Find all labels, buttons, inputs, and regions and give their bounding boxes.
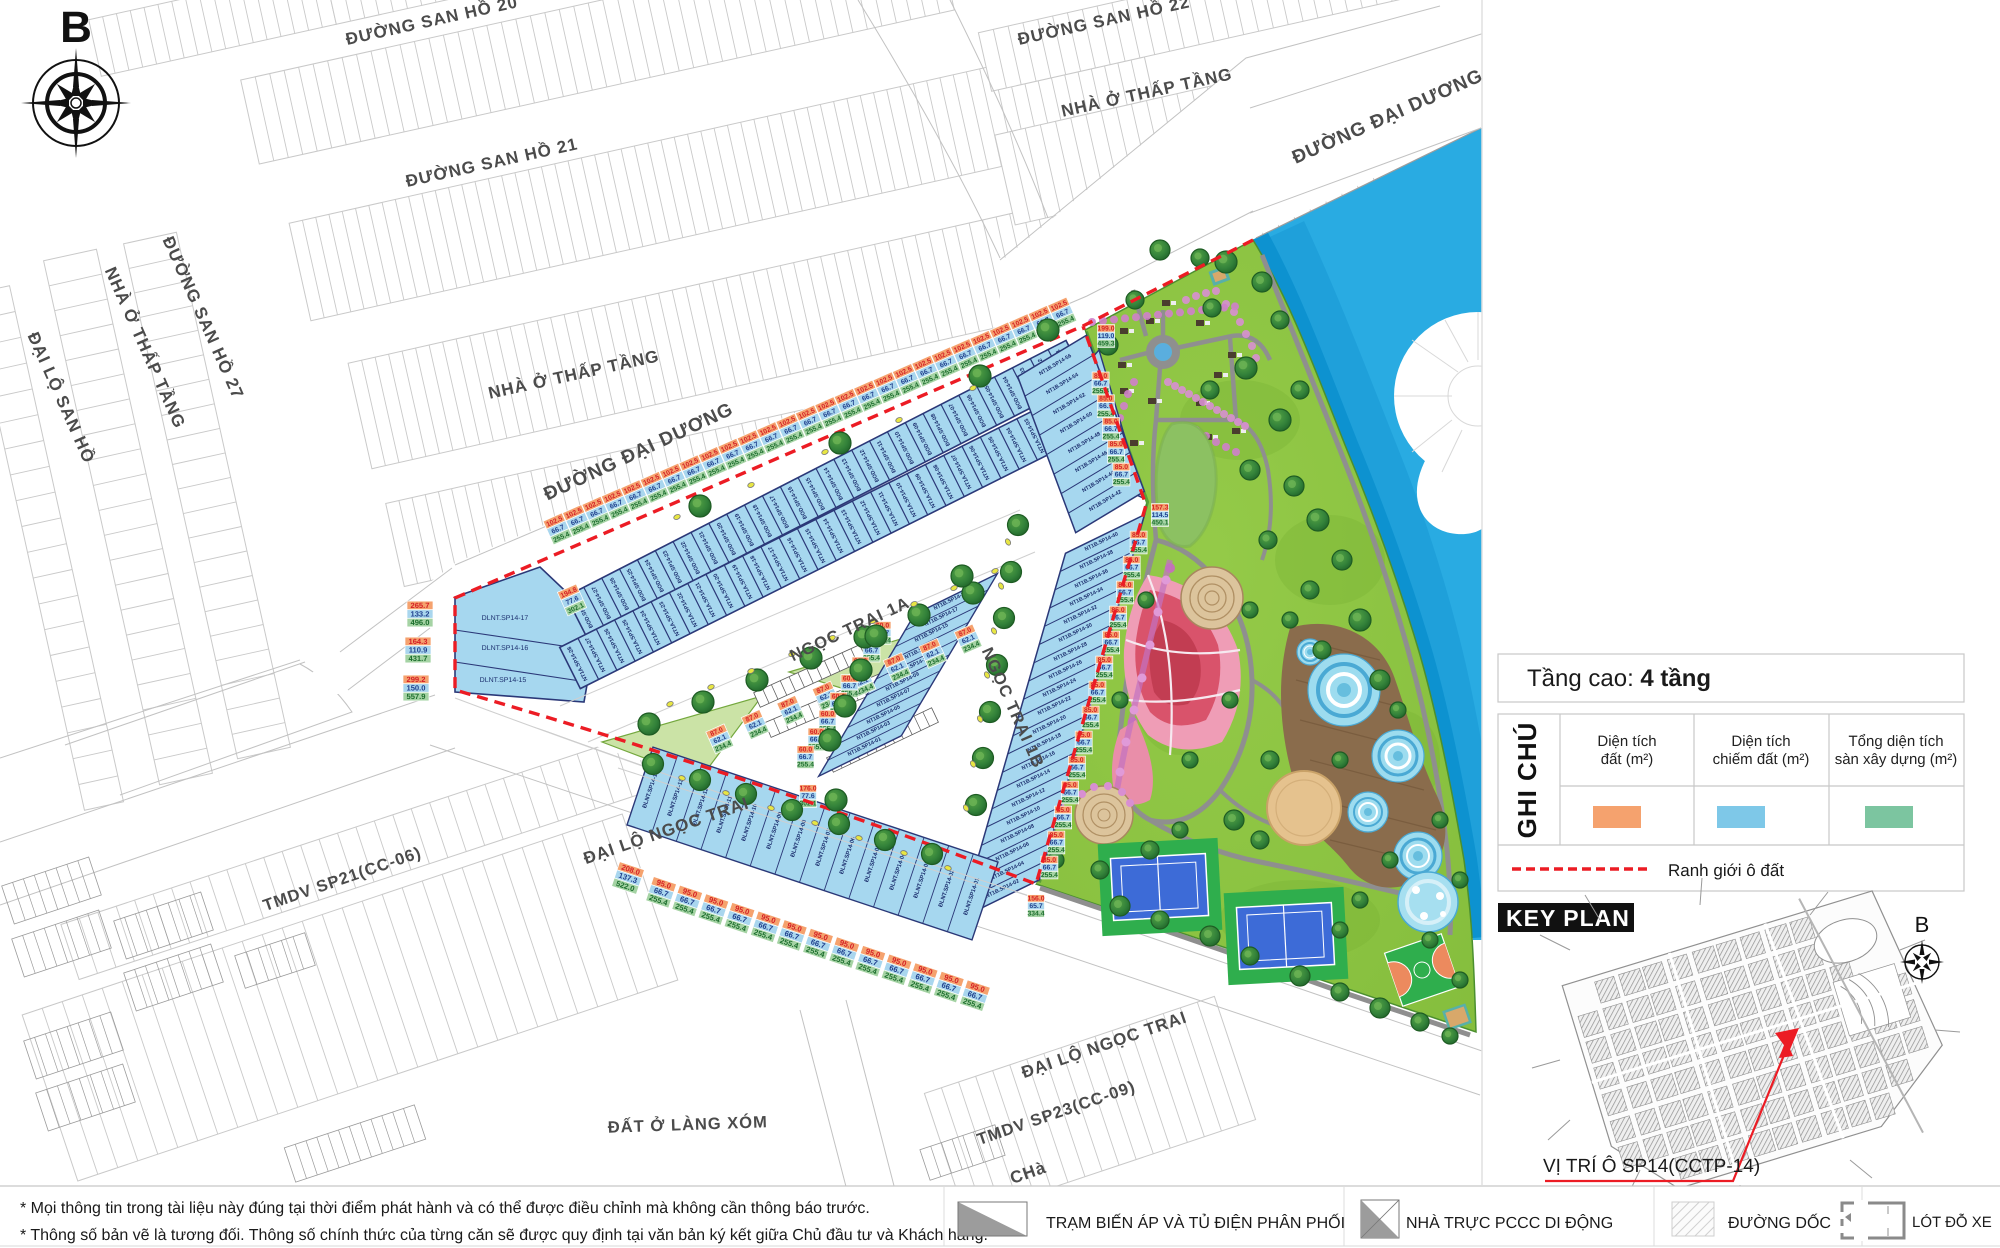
svg-text:119.0: 119.0 <box>1098 333 1115 340</box>
svg-text:NHÀ TRỰC PCCC DI ĐỘNG: NHÀ TRỰC PCCC DI ĐỘNG <box>1406 1213 1613 1232</box>
svg-text:66.7: 66.7 <box>1094 380 1107 387</box>
svg-text:* Thông số bản vẽ là tương đối: * Thông số bản vẽ là tương đối. Thông số… <box>20 1227 988 1244</box>
svg-text:114.5: 114.5 <box>1152 512 1169 519</box>
svg-text:60.0: 60.0 <box>821 711 834 718</box>
svg-text:255.4: 255.4 <box>1096 672 1113 679</box>
svg-text:157.3: 157.3 <box>1151 504 1168 511</box>
svg-text:66.7: 66.7 <box>843 683 856 690</box>
svg-text:459.3: 459.3 <box>1097 341 1114 348</box>
svg-text:334.4: 334.4 <box>1027 911 1044 918</box>
svg-text:496.0: 496.0 <box>410 618 429 627</box>
svg-text:GHI CHÚ: GHI CHÚ <box>1512 722 1542 839</box>
svg-text:Tổng diện tích: Tổng diện tích <box>1848 733 1943 750</box>
svg-text:85.0: 85.0 <box>1125 557 1138 564</box>
svg-text:66.7: 66.7 <box>821 719 834 726</box>
svg-text:85.0: 85.0 <box>1099 396 1112 403</box>
svg-text:66.7: 66.7 <box>1063 790 1076 797</box>
svg-text:85.0: 85.0 <box>1084 707 1097 714</box>
svg-text:Ranh giới ô đất: Ranh giới ô đất <box>1668 861 1784 880</box>
svg-text:255.4: 255.4 <box>1109 622 1126 629</box>
svg-text:66.7: 66.7 <box>1115 472 1128 479</box>
svg-text:255.4: 255.4 <box>1113 479 1130 486</box>
svg-text:VỊ TRÍ Ô SP14(CCTP-14): VỊ TRÍ Ô SP14(CCTP-14) <box>1543 1155 1760 1177</box>
svg-text:255.4: 255.4 <box>1108 456 1125 463</box>
svg-text:đất (m²): đất (m²) <box>1601 751 1654 768</box>
svg-text:Diện tích: Diện tích <box>1597 733 1656 750</box>
svg-text:B: B <box>60 3 92 52</box>
svg-text:255.4: 255.4 <box>1061 797 1078 804</box>
svg-text:LÓT ĐỖ XE: LÓT ĐỖ XE <box>1912 1213 1992 1231</box>
svg-text:255.4: 255.4 <box>1068 772 1085 779</box>
svg-text:chiếm đất (m²): chiếm đất (m²) <box>1713 751 1810 768</box>
svg-text:B: B <box>1915 912 1930 937</box>
svg-text:66.7: 66.7 <box>1104 426 1117 433</box>
svg-text:DLNT.SP14-15: DLNT.SP14-15 <box>480 677 527 684</box>
svg-text:450.1: 450.1 <box>1151 520 1168 527</box>
svg-text:85.0: 85.0 <box>1110 441 1123 448</box>
svg-text:* Mọi thông tin trong tài liệu: * Mọi thông tin trong tài liệu này đúng … <box>20 1200 870 1217</box>
svg-text:66.7: 66.7 <box>865 648 878 655</box>
svg-text:156.0: 156.0 <box>1027 895 1044 902</box>
svg-text:66.7: 66.7 <box>799 754 812 761</box>
svg-text:66.7: 66.7 <box>1091 690 1104 697</box>
svg-text:255.4: 255.4 <box>1055 822 1072 829</box>
svg-text:85.0: 85.0 <box>1115 464 1128 471</box>
svg-text:255.4: 255.4 <box>1048 847 1065 854</box>
svg-text:66.7: 66.7 <box>1110 449 1123 456</box>
svg-text:Tầng cao: 4 tầng: Tầng cao: 4 tầng <box>1527 665 1711 692</box>
svg-text:255.4: 255.4 <box>1041 872 1058 879</box>
svg-text:sàn xây dựng (m²): sàn xây dựng (m²) <box>1835 751 1958 768</box>
svg-text:Diện tích: Diện tích <box>1731 733 1790 750</box>
svg-text:TRẠM BIẾN ÁP VÀ TỦ ĐIỆN PHÂN P: TRẠM BIẾN ÁP VÀ TỦ ĐIỆN PHÂN PHỐI <box>1046 1213 1345 1232</box>
svg-text:66.7: 66.7 <box>1056 815 1069 822</box>
svg-text:DLNT.SP14-16: DLNT.SP14-16 <box>482 645 529 652</box>
svg-text:66.7: 66.7 <box>1050 840 1063 847</box>
svg-text:557.9: 557.9 <box>406 692 425 701</box>
svg-text:66.7: 66.7 <box>1070 765 1083 772</box>
svg-text:KEY PLAN: KEY PLAN <box>1506 905 1630 931</box>
svg-text:66.7: 66.7 <box>1043 865 1056 872</box>
svg-text:65.7: 65.7 <box>1029 903 1042 910</box>
svg-text:DLNT.SP14-17: DLNT.SP14-17 <box>482 615 529 622</box>
svg-text:ĐƯỜNG DỐC: ĐƯỜNG DỐC <box>1728 1213 1831 1232</box>
svg-text:431.7: 431.7 <box>408 654 427 663</box>
svg-text:255.4: 255.4 <box>797 762 814 769</box>
svg-text:199.0: 199.0 <box>1097 325 1114 332</box>
svg-text:60.0: 60.0 <box>799 747 812 754</box>
svg-text:255.4: 255.4 <box>1102 434 1119 441</box>
svg-text:176.0: 176.0 <box>799 785 816 792</box>
svg-text:255.4: 255.4 <box>1082 722 1099 729</box>
svg-text:255.4: 255.4 <box>1075 747 1092 754</box>
